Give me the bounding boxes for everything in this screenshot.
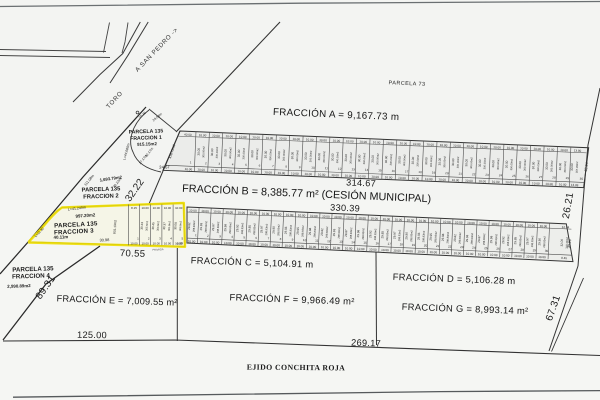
- svg-text:29.87: 29.87: [477, 235, 481, 243]
- svg-text:18: 18: [400, 242, 404, 246]
- svg-text:11: 11: [325, 166, 329, 170]
- svg-text:29.98: 29.98: [356, 229, 360, 237]
- svg-text:30.00: 30.00: [464, 159, 468, 167]
- svg-text:30.43: 30.43: [140, 222, 145, 230]
- svg-text:10.00: 10.00: [333, 246, 341, 250]
- svg-text:2,990.89m2: 2,990.89m2: [7, 283, 31, 289]
- svg-text:10.00: 10.00: [532, 181, 540, 185]
- svg-text:30.00: 30.00: [531, 161, 535, 169]
- svg-text:29.87: 29.87: [344, 229, 348, 237]
- svg-text:300.00m2: 300.00m2: [415, 154, 419, 166]
- svg-text:30.00: 30.00: [290, 151, 294, 159]
- svg-text:29: 29: [566, 176, 570, 180]
- svg-text:30.00: 30.00: [518, 161, 522, 169]
- svg-text:29.83: 29.83: [284, 226, 288, 234]
- svg-text:10.00: 10.00: [467, 221, 475, 225]
- svg-text:23: 23: [485, 173, 489, 177]
- svg-text:29.88: 29.88: [308, 227, 312, 235]
- svg-text:30.00: 30.00: [504, 160, 508, 168]
- svg-text:13: 13: [339, 240, 343, 244]
- svg-text:21: 21: [436, 244, 440, 248]
- svg-text:70.55: 70.55: [120, 248, 146, 260]
- svg-text:10.00: 10.00: [357, 247, 365, 251]
- svg-text:29.88: 29.88: [441, 233, 445, 241]
- svg-text:19: 19: [432, 171, 436, 175]
- svg-text:25: 25: [512, 174, 516, 178]
- svg-text:10.00: 10.00: [250, 211, 258, 215]
- svg-text:357.09m2: 357.09m2: [575, 161, 579, 173]
- svg-text:298.83m2: 298.83m2: [482, 233, 487, 245]
- svg-text:10.00: 10.00: [189, 208, 197, 212]
- svg-text:30.00: 30.00: [263, 150, 267, 158]
- svg-text:298.83m2: 298.83m2: [349, 227, 354, 239]
- svg-text:29.92: 29.92: [235, 224, 239, 232]
- svg-text:298.93m2: 298.93m2: [373, 228, 378, 240]
- svg-text:298.83m2: 298.83m2: [445, 231, 450, 243]
- svg-text:300.00m2: 300.00m2: [335, 151, 339, 163]
- svg-text:298.93m2: 298.93m2: [361, 227, 366, 239]
- svg-text:29.90: 29.90: [272, 226, 276, 234]
- svg-text:14: 14: [365, 168, 369, 172]
- svg-text:10.00: 10.00: [266, 136, 274, 140]
- svg-text:10.00: 10.00: [466, 252, 474, 256]
- svg-text:30: 30: [580, 177, 584, 181]
- svg-text:30: 30: [545, 249, 549, 253]
- svg-text:21: 21: [459, 172, 463, 176]
- svg-text:10.00: 10.00: [298, 213, 306, 217]
- svg-text:10.00: 10.00: [429, 250, 437, 254]
- svg-text:10.00: 10.00: [443, 220, 451, 224]
- svg-text:10.00: 10.00: [199, 133, 207, 137]
- svg-text:17: 17: [405, 169, 409, 173]
- svg-text:15: 15: [378, 168, 382, 172]
- svg-text:10.00: 10.00: [385, 175, 393, 179]
- svg-text:10.00: 10.00: [452, 178, 460, 182]
- svg-text:10.00: 10.00: [431, 219, 439, 223]
- svg-text:300.00m2: 300.00m2: [201, 146, 205, 158]
- svg-text:18: 18: [418, 170, 422, 174]
- svg-text:10.00: 10.00: [331, 173, 339, 177]
- svg-text:10.00: 10.00: [479, 221, 487, 225]
- svg-text:10.00: 10.00: [533, 147, 541, 151]
- svg-text:10.00: 10.00: [212, 240, 220, 244]
- svg-text:10.00: 10.00: [466, 144, 474, 148]
- svg-text:298.83m2: 298.83m2: [216, 221, 221, 233]
- svg-text:300.00m2: 300.00m2: [228, 147, 232, 159]
- svg-text:10.00: 10.00: [358, 216, 366, 220]
- svg-text:29.82: 29.82: [187, 222, 191, 230]
- svg-text:298.93m2: 298.93m2: [276, 224, 281, 236]
- svg-text:300.00m2: 300.00m2: [536, 159, 540, 171]
- svg-text:10.00: 10.00: [200, 240, 208, 244]
- svg-text:10.00: 10.00: [454, 251, 462, 255]
- svg-text:30.00: 30.00: [223, 149, 227, 157]
- svg-text:10.00: 10.00: [333, 139, 341, 143]
- svg-text:12.34: 12.34: [562, 225, 570, 229]
- svg-text:30.00: 30.00: [424, 157, 428, 165]
- svg-text:29.93: 29.93: [332, 228, 336, 236]
- svg-text:10.00: 10.00: [164, 241, 172, 245]
- svg-text:10.00: 10.00: [310, 214, 318, 218]
- svg-text:30.00: 30.00: [558, 162, 562, 170]
- svg-text:300.00m2: 300.00m2: [402, 154, 406, 166]
- svg-text:298.93m2: 298.93m2: [470, 232, 475, 244]
- svg-text:10.00: 10.00: [309, 245, 317, 249]
- svg-text:30.00: 30.00: [330, 153, 334, 161]
- svg-text:27: 27: [539, 175, 543, 179]
- svg-text:30.00: 30.00: [197, 148, 201, 156]
- svg-text:24: 24: [499, 173, 503, 177]
- svg-text:19: 19: [412, 243, 416, 247]
- svg-text:300.00m2: 300.00m2: [509, 158, 513, 170]
- svg-text:10.00: 10.00: [478, 252, 486, 256]
- svg-text:10.00: 10.00: [153, 241, 161, 245]
- svg-text:314.67: 314.67: [346, 177, 376, 188]
- svg-text:300.00m2: 300.00m2: [496, 158, 500, 170]
- svg-text:300.00m2: 300.00m2: [241, 147, 245, 159]
- svg-text:10.00: 10.00: [197, 168, 205, 172]
- svg-text:14: 14: [351, 240, 355, 244]
- svg-text:10: 10: [311, 166, 315, 170]
- svg-text:30.45: 30.45: [151, 222, 156, 230]
- svg-text:30.00: 30.00: [411, 156, 415, 164]
- svg-text:30.00: 30.00: [491, 160, 495, 168]
- svg-text:298.93m2: 298.93m2: [506, 234, 511, 246]
- svg-text:10.00: 10.00: [212, 134, 220, 138]
- svg-text:29.82: 29.82: [453, 234, 457, 242]
- svg-text:10.00: 10.00: [284, 244, 292, 248]
- svg-text:10.00: 10.00: [417, 249, 425, 253]
- svg-text:10.00: 10.00: [213, 209, 221, 213]
- svg-text:29.83: 29.83: [417, 232, 421, 240]
- svg-text:298.93m2: 298.93m2: [337, 226, 342, 238]
- svg-text:298.93m2: 298.93m2: [204, 220, 209, 232]
- svg-text:10.00: 10.00: [141, 206, 149, 210]
- svg-text:10.00: 10.00: [505, 180, 513, 184]
- svg-text:29.95: 29.95: [296, 227, 300, 235]
- svg-text:13.80: 13.80: [574, 148, 582, 152]
- svg-text:10.00: 10.00: [545, 182, 553, 186]
- svg-text:10.00: 10.00: [279, 136, 287, 140]
- svg-text:300.00m2: 300.00m2: [268, 148, 272, 160]
- svg-text:17: 17: [388, 242, 392, 246]
- svg-text:10.00: 10.00: [141, 241, 149, 245]
- svg-text:10.00: 10.00: [252, 135, 260, 139]
- svg-text:10.00: 10.00: [426, 142, 434, 146]
- svg-text:28: 28: [552, 176, 556, 180]
- svg-text:298.83m2: 298.83m2: [325, 226, 330, 238]
- svg-text:10.00: 10.00: [520, 146, 528, 150]
- svg-text:30.00: 30.00: [344, 154, 348, 162]
- svg-text:10.00: 10.00: [260, 243, 268, 247]
- svg-text:10.00: 10.00: [425, 177, 433, 181]
- svg-text:10.00: 10.00: [188, 239, 196, 243]
- svg-text:10.00: 10.00: [547, 147, 555, 151]
- svg-text:10: 10: [303, 238, 307, 242]
- svg-text:10.00: 10.00: [538, 255, 546, 259]
- svg-text:30.00: 30.00: [371, 155, 375, 163]
- svg-text:10.00: 10.00: [491, 222, 499, 226]
- svg-text:10.00: 10.00: [503, 222, 511, 226]
- svg-text:29.85: 29.85: [247, 225, 251, 233]
- svg-text:29.95: 29.95: [429, 233, 433, 241]
- svg-text:32.00: 32.00: [560, 239, 564, 247]
- svg-text:10.00: 10.00: [413, 142, 421, 146]
- svg-text:16: 16: [375, 241, 379, 245]
- svg-text:298.83m2: 298.83m2: [312, 225, 317, 237]
- svg-text:300.00m2: 300.00m2: [429, 155, 433, 167]
- svg-text:26: 26: [496, 247, 500, 251]
- svg-text:10.00: 10.00: [438, 177, 446, 181]
- svg-text:8.15: 8.15: [131, 206, 137, 210]
- svg-text:10.00: 10.00: [201, 209, 209, 213]
- svg-text:10.00: 10.00: [514, 254, 522, 258]
- svg-text:29.85: 29.85: [380, 231, 384, 239]
- svg-text:10.00: 10.00: [225, 134, 233, 138]
- svg-text:12: 12: [327, 239, 331, 243]
- svg-text:10.00: 10.00: [440, 143, 448, 147]
- svg-text:10.00: 10.00: [395, 218, 403, 222]
- svg-text:298.83m2: 298.83m2: [252, 223, 257, 235]
- svg-text:10.00: 10.00: [455, 220, 463, 224]
- svg-text:10.00: 10.00: [237, 211, 245, 215]
- svg-text:300.00m2: 300.00m2: [362, 152, 366, 164]
- svg-text:300.00m2: 300.00m2: [215, 146, 219, 158]
- svg-text:10.00: 10.00: [480, 145, 488, 149]
- svg-text:10.00: 10.00: [236, 241, 244, 245]
- svg-text:10.00: 10.00: [164, 206, 172, 210]
- svg-text:298.93m2: 298.93m2: [264, 223, 269, 235]
- svg-text:10.00: 10.00: [334, 215, 342, 219]
- svg-text:12: 12: [338, 167, 342, 171]
- svg-text:298.93m2: 298.93m2: [228, 222, 233, 234]
- svg-text:298.93m2: 298.93m2: [433, 231, 438, 243]
- svg-text:301.8m2: 301.8m2: [167, 220, 172, 231]
- svg-text:15: 15: [363, 241, 367, 245]
- svg-text:30.00: 30.00: [317, 153, 321, 161]
- svg-text:10.00: 10.00: [559, 182, 567, 186]
- svg-text:300.00m2: 300.00m2: [549, 160, 553, 172]
- svg-text:10.00: 10.00: [560, 148, 568, 152]
- svg-text:305.5m2: 305.5m2: [144, 220, 149, 231]
- svg-text:11: 11: [315, 239, 319, 243]
- svg-text:29.93: 29.93: [199, 222, 203, 230]
- svg-text:300.00m2: 300.00m2: [469, 157, 473, 169]
- svg-text:300.00m2: 300.00m2: [349, 152, 353, 164]
- svg-text:10.00: 10.00: [507, 146, 515, 150]
- svg-text:29.92: 29.92: [501, 236, 505, 244]
- svg-text:30.00: 30.00: [451, 158, 455, 166]
- svg-text:10.00: 10.00: [286, 213, 294, 217]
- svg-text:10.00: 10.00: [405, 249, 413, 253]
- svg-text:30.08: 30.08: [173, 222, 178, 230]
- svg-text:298.93m2: 298.93m2: [409, 230, 414, 242]
- svg-text:29.98: 29.98: [223, 224, 227, 232]
- svg-text:10.00: 10.00: [526, 254, 534, 258]
- svg-text:10.00: 10.00: [381, 248, 389, 252]
- svg-text:300.00m2: 300.00m2: [389, 153, 393, 165]
- svg-text:24: 24: [472, 246, 476, 250]
- svg-text:298.93m2: 298.93m2: [530, 235, 535, 247]
- svg-text:915.15m2: 915.15m2: [137, 141, 157, 147]
- svg-text:10.00: 10.00: [291, 171, 299, 175]
- svg-text:10.00: 10.00: [304, 172, 312, 176]
- svg-text:10.00: 10.00: [519, 181, 527, 185]
- svg-text:30.00: 30.00: [357, 154, 361, 162]
- svg-text:125.00: 125.00: [77, 330, 107, 341]
- svg-text:10.00: 10.00: [527, 223, 535, 227]
- svg-text:10.00: 10.00: [318, 172, 326, 176]
- svg-text:22: 22: [472, 172, 476, 176]
- svg-text:330.39: 330.39: [330, 202, 360, 213]
- svg-text:10.00: 10.00: [493, 145, 501, 149]
- svg-text:29.93: 29.93: [465, 234, 469, 242]
- svg-text:300.00m2: 300.00m2: [282, 149, 286, 161]
- svg-text:30.00: 30.00: [397, 156, 401, 164]
- svg-text:20: 20: [424, 243, 428, 247]
- svg-text:300.00m2: 300.00m2: [255, 148, 259, 160]
- svg-text:10.00: 10.00: [453, 144, 461, 148]
- svg-text:30.00: 30.00: [384, 155, 388, 163]
- svg-text:29.90: 29.90: [404, 232, 408, 240]
- svg-text:298.83m2: 298.83m2: [192, 220, 197, 232]
- svg-text:PRIVADA: PRIVADA: [152, 247, 164, 252]
- svg-text:10.00: 10.00: [237, 169, 245, 173]
- svg-text:30.00: 30.00: [210, 148, 214, 156]
- svg-text:10.00: 10.00: [175, 206, 183, 210]
- svg-text:10.00: 10.00: [393, 248, 401, 252]
- svg-text:10.00: 10.00: [319, 138, 327, 142]
- svg-text:298.93m2: 298.93m2: [240, 222, 245, 234]
- svg-text:10.00: 10.00: [239, 135, 247, 139]
- svg-text:28: 28: [520, 248, 524, 252]
- svg-text:10.00: 10.00: [224, 169, 232, 173]
- svg-text:10.00: 10.00: [407, 218, 415, 222]
- svg-text:25: 25: [484, 246, 488, 250]
- svg-text:300.00m2: 300.00m2: [375, 153, 379, 165]
- svg-text:22: 22: [448, 244, 452, 248]
- svg-text:10.00: 10.00: [419, 219, 427, 223]
- svg-text:40.00: 40.00: [184, 132, 192, 136]
- svg-text:298.83m2: 298.83m2: [518, 234, 523, 246]
- svg-text:29.82: 29.82: [320, 228, 324, 236]
- svg-text:29.98: 29.98: [489, 235, 493, 243]
- svg-text:298.93m2: 298.93m2: [542, 236, 547, 248]
- svg-text:29: 29: [533, 248, 537, 252]
- svg-text:300.00m2: 300.00m2: [295, 149, 299, 161]
- svg-text:10.00: 10.00: [346, 139, 354, 143]
- svg-text:10.00: 10.00: [359, 140, 367, 144]
- svg-text:16: 16: [392, 169, 396, 173]
- svg-text:10.00: 10.00: [278, 171, 286, 175]
- svg-text:40.11m: 40.11m: [53, 234, 68, 240]
- svg-text:10.00: 10.00: [502, 253, 510, 257]
- svg-text:300.00m2: 300.00m2: [322, 151, 326, 163]
- svg-text:10.00: 10.00: [321, 245, 329, 249]
- svg-text:300.00m2: 300.00m2: [442, 155, 446, 167]
- svg-text:30.00: 30.00: [570, 163, 574, 171]
- svg-text:10.00: 10.00: [224, 241, 232, 245]
- svg-text:10.00: 10.00: [248, 242, 256, 246]
- svg-text:10.00: 10.00: [515, 223, 523, 227]
- svg-text:10.00: 10.00: [465, 179, 473, 183]
- svg-text:298.83m2: 298.83m2: [458, 232, 463, 244]
- svg-text:10.00: 10.00: [153, 206, 161, 210]
- svg-text:10.00: 10.00: [292, 137, 300, 141]
- svg-text:300.00m2: 300.00m2: [456, 156, 460, 168]
- svg-text:10.00: 10.00: [540, 224, 548, 228]
- svg-text:FRACCION 2: FRACCION 2: [83, 193, 119, 200]
- svg-text:298.93m2: 298.93m2: [300, 225, 305, 237]
- svg-text:29.92: 29.92: [368, 230, 372, 238]
- svg-text:10.00: 10.00: [251, 170, 259, 174]
- svg-text:29.97: 29.97: [392, 231, 396, 239]
- svg-text:30.98: 30.98: [99, 237, 109, 243]
- svg-text:269.17: 269.17: [351, 337, 381, 348]
- svg-text:EJIDO CONCHITA ROJA: EJIDO CONCHITA ROJA: [247, 363, 346, 373]
- svg-text:298.83m2: 298.83m2: [288, 224, 293, 236]
- svg-text:30.00: 30.00: [277, 151, 281, 159]
- svg-text:30.00: 30.00: [250, 150, 254, 158]
- svg-text:30.00: 30.00: [237, 149, 241, 157]
- svg-text:30.00: 30.00: [438, 158, 442, 166]
- svg-text:27: 27: [508, 247, 512, 251]
- svg-text:9.58: 9.58: [177, 241, 183, 245]
- svg-text:10.00: 10.00: [345, 246, 353, 250]
- svg-text:30.00: 30.00: [304, 152, 308, 160]
- svg-text:30.37: 30.37: [162, 222, 167, 230]
- svg-text:10.00: 10.00: [274, 212, 282, 216]
- svg-text:8.45: 8.45: [561, 256, 567, 260]
- svg-text:10.00: 10.00: [306, 137, 314, 141]
- svg-text:29.97: 29.97: [259, 225, 263, 233]
- svg-text:10.00: 10.00: [373, 140, 381, 144]
- svg-text:10.00: 10.00: [322, 214, 330, 218]
- svg-text:10.00: 10.00: [264, 170, 272, 174]
- svg-text:29.90: 29.90: [537, 238, 541, 246]
- svg-text:13.09: 13.09: [571, 183, 579, 187]
- svg-text:298.93m2: 298.93m2: [397, 229, 402, 241]
- svg-text:10.00: 10.00: [211, 168, 219, 172]
- svg-text:20: 20: [445, 171, 449, 175]
- svg-text:10.00: 10.00: [262, 212, 270, 216]
- svg-text:10.00: 10.00: [383, 217, 391, 221]
- svg-text:10.00: 10.00: [492, 180, 500, 184]
- svg-text:10.00: 10.00: [386, 141, 394, 145]
- svg-text:29.97: 29.97: [525, 237, 529, 245]
- svg-text:300.00m2: 300.00m2: [563, 160, 567, 172]
- svg-text:10.00: 10.00: [185, 167, 193, 171]
- svg-text:10.00: 10.00: [346, 215, 354, 219]
- svg-text:298.93m2: 298.93m2: [494, 233, 499, 245]
- svg-text:10.00: 10.00: [398, 176, 406, 180]
- svg-text:300.00m2: 300.00m2: [308, 150, 312, 162]
- svg-text:10.00: 10.00: [369, 247, 377, 251]
- svg-text:30.00: 30.00: [545, 162, 549, 170]
- svg-text:10.00: 10.00: [442, 251, 450, 255]
- svg-text:298.83m2: 298.83m2: [421, 230, 426, 242]
- svg-text:26: 26: [525, 174, 529, 178]
- svg-text:10.00: 10.00: [478, 179, 486, 183]
- svg-text:300.00m2: 300.00m2: [482, 157, 486, 169]
- svg-text:10.00: 10.00: [130, 241, 138, 245]
- svg-text:300.00m2: 300.00m2: [523, 159, 527, 171]
- svg-text:29.85: 29.85: [513, 236, 517, 244]
- svg-text:10.00: 10.00: [400, 141, 408, 145]
- svg-text:10.00: 10.00: [225, 210, 233, 214]
- svg-text:10.00: 10.00: [272, 243, 280, 247]
- svg-text:23: 23: [460, 245, 464, 249]
